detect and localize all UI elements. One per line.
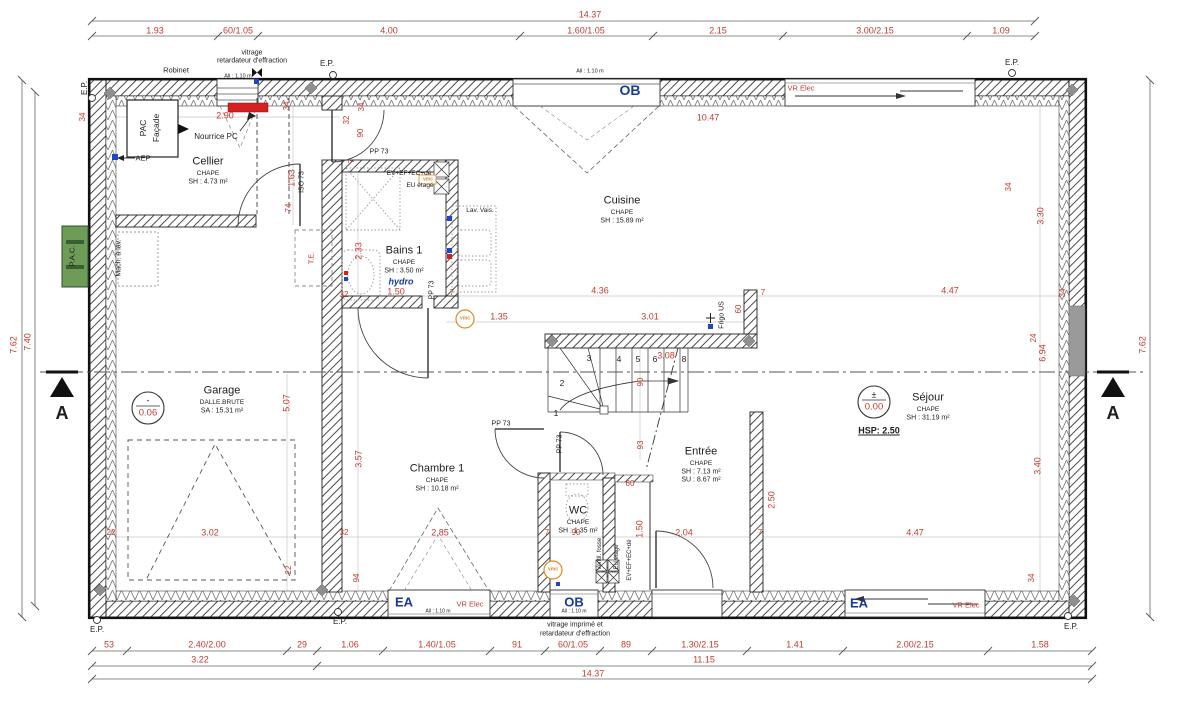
washing-machine (118, 232, 158, 286)
level-circle-sejour (858, 386, 890, 418)
concrete-post (1069, 306, 1085, 376)
pac-unit (62, 226, 88, 287)
toilet (566, 484, 588, 522)
pac-facade-box (127, 100, 189, 157)
level-circle-garage (132, 392, 164, 424)
window-ea-sejour (845, 590, 985, 617)
window-ea-bottom-left (388, 508, 490, 617)
entry-door-opening (652, 590, 722, 617)
window-ob-top (513, 79, 660, 173)
garage-door (128, 440, 295, 580)
vmc-circle (456, 310, 474, 328)
staircase (548, 348, 688, 470)
kitchen-sink (452, 206, 496, 292)
floor-plan-canvas (0, 0, 1203, 711)
vmc-riser-box (419, 175, 436, 184)
fixtures (62, 68, 715, 586)
window-sliding-top-right (785, 79, 975, 106)
vmc-circle (544, 561, 562, 579)
plumbing-points (344, 216, 715, 586)
floor-plan-sheet: 14.371.9360/1.054.001.60/1.052.153.00/2.… (0, 0, 1203, 711)
window-ob-bottom (550, 590, 598, 617)
window-top-left (217, 79, 258, 148)
shower (346, 168, 400, 230)
riser-boxes (434, 162, 619, 583)
